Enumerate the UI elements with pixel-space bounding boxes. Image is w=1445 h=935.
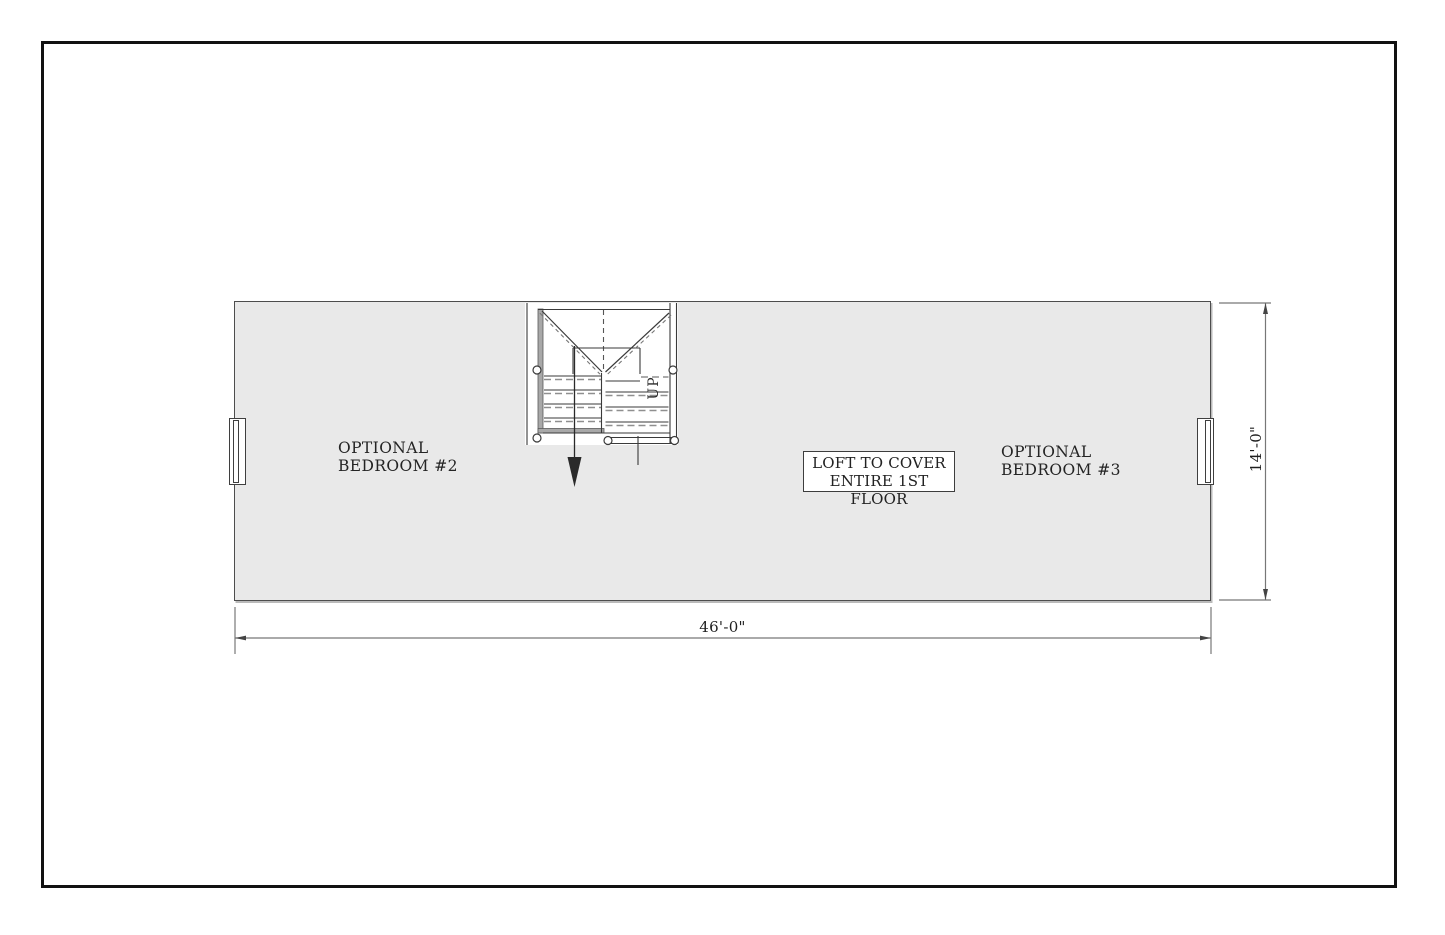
label-bedroom-3: OPTIONAL BEDROOM #3 (1001, 444, 1121, 479)
loft-note-line2: ENTIRE 1ST FLOOR (804, 472, 954, 508)
stairwell-opening (525, 303, 678, 445)
label-bedroom-3-line2: BEDROOM #3 (1001, 462, 1121, 480)
label-bedroom-2-line1: OPTIONAL (338, 440, 458, 458)
width-dimension-label: 46'-0" (650, 618, 795, 636)
window-left-pane (233, 420, 239, 483)
label-bedroom-3-line1: OPTIONAL (1001, 444, 1121, 462)
label-bedroom-2: OPTIONAL BEDROOM #2 (338, 440, 458, 475)
window-right-pane (1205, 420, 1211, 483)
window-left (229, 418, 246, 485)
loft-note-line1: LOFT TO COVER (804, 454, 954, 472)
window-right (1197, 418, 1214, 485)
label-bedroom-2-line2: BEDROOM #2 (338, 458, 458, 476)
loft-note-box: LOFT TO COVER ENTIRE 1ST FLOOR (803, 451, 955, 492)
